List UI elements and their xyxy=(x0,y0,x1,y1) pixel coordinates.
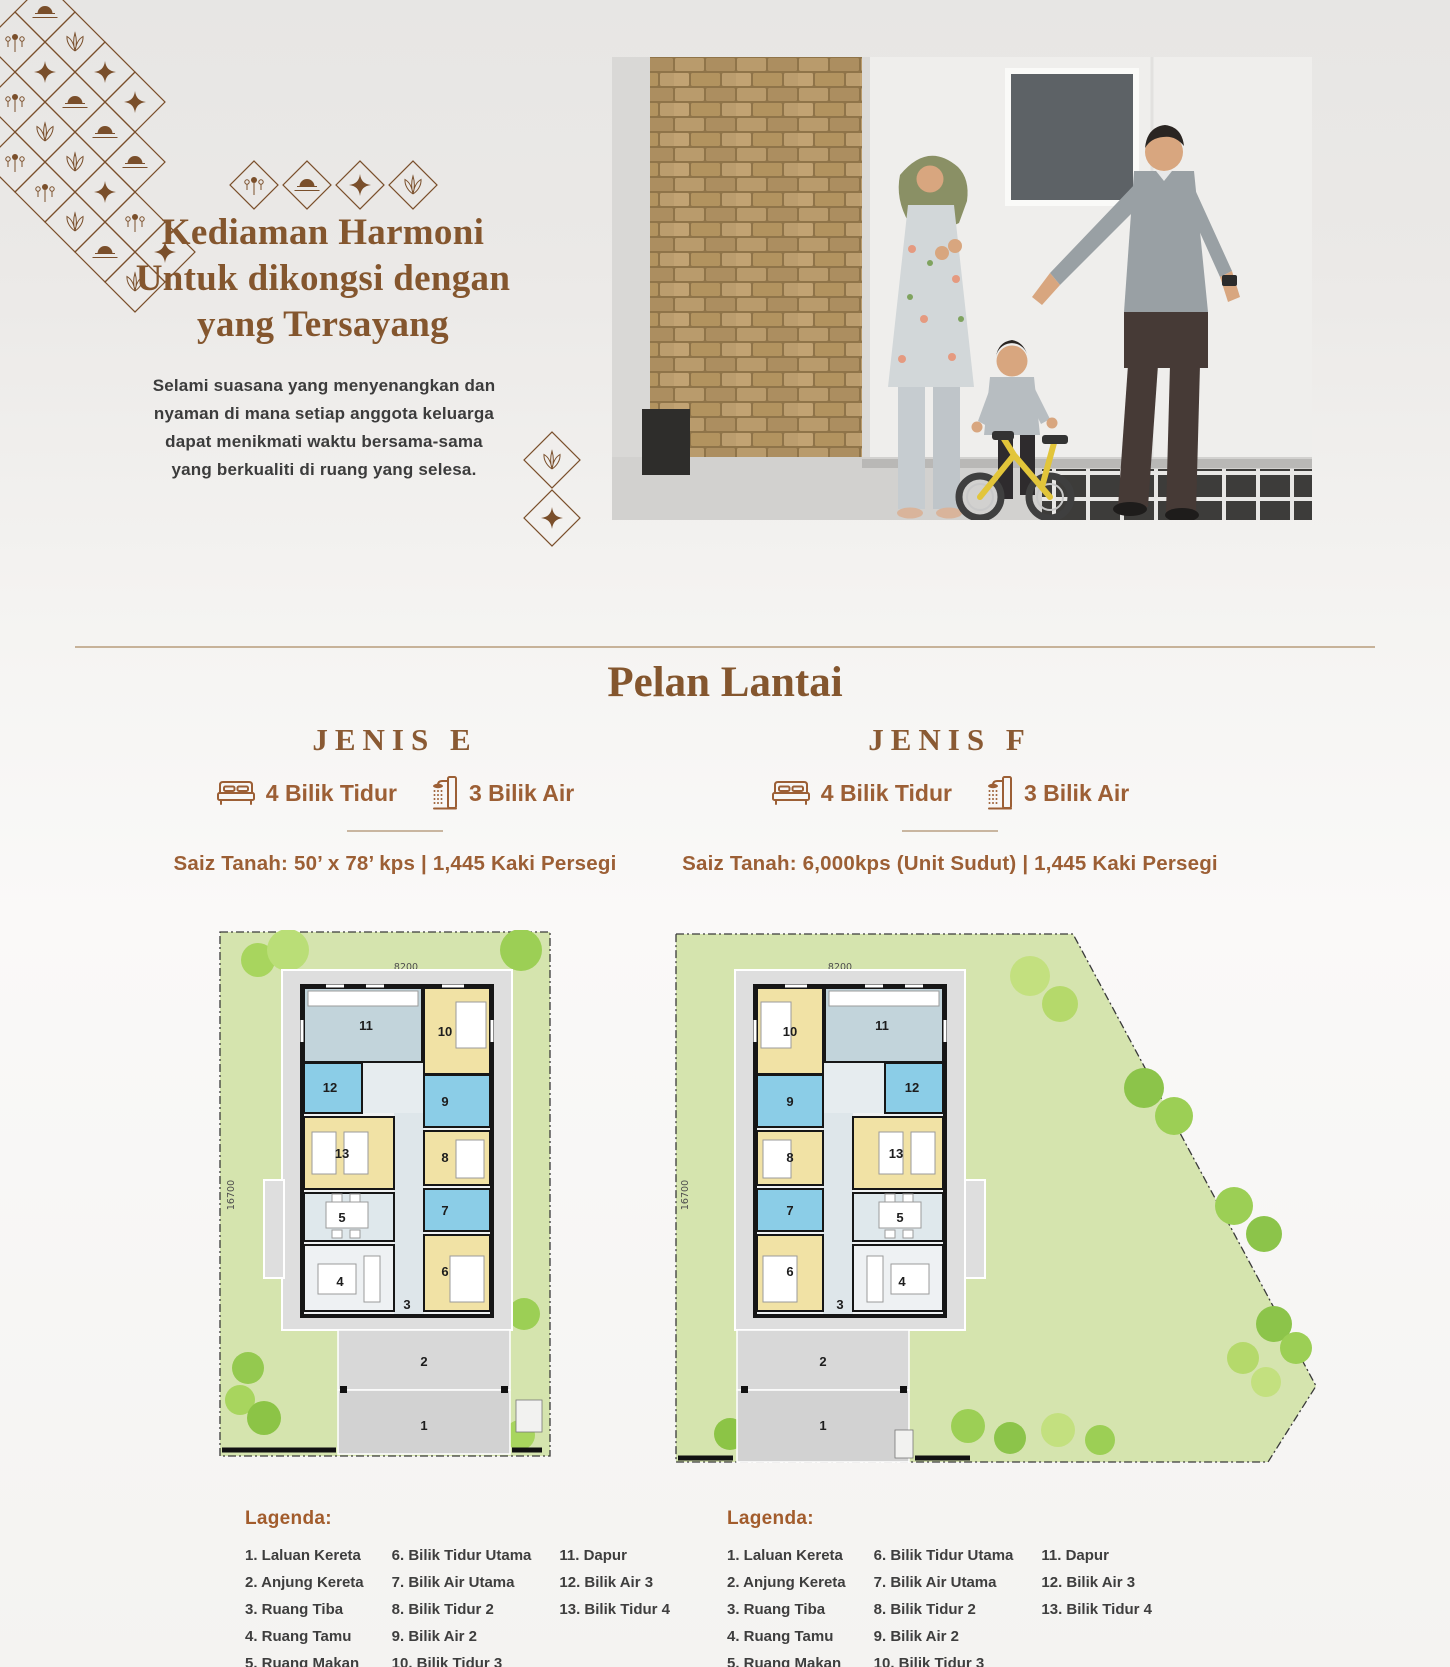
svg-text:6: 6 xyxy=(441,1264,448,1279)
legend-f: Lagenda: 1. Laluan Kereta2. Anjung Keret… xyxy=(727,1508,1187,1667)
diamond-sun-icon xyxy=(75,102,135,162)
svg-text:2: 2 xyxy=(819,1354,826,1369)
legend-item: 8. Bilik Tidur 2 xyxy=(392,1596,532,1623)
plan-depth-label: 16700 xyxy=(680,1180,691,1210)
diamond-lotus-icon xyxy=(389,161,437,209)
diamond-lotus-icon xyxy=(15,102,75,162)
bed-icon xyxy=(771,778,811,808)
plan-depth-label: 16700 xyxy=(226,1180,237,1210)
stone-wall xyxy=(650,57,864,465)
legend-item: 1. Laluan Kereta xyxy=(727,1542,846,1569)
gate-walk xyxy=(516,1400,542,1432)
mini-divider xyxy=(347,830,443,832)
diamond-dots-icon xyxy=(230,161,278,209)
svg-text:4: 4 xyxy=(898,1274,906,1289)
svg-text:7: 7 xyxy=(786,1203,793,1218)
legend-column: 6. Bilik Tidur Utama7. Bilik Air Utama8.… xyxy=(874,1542,1014,1667)
porch-post xyxy=(900,1386,907,1393)
section-title: Pelan Lantai xyxy=(0,658,1450,707)
porch-post xyxy=(501,1386,508,1393)
bed-icon xyxy=(216,778,256,808)
room-9-bilik-air-2 xyxy=(424,1075,490,1127)
hero-description: Selami suasana yang menyenangkan dan nya… xyxy=(146,372,502,484)
diamond-star-icon xyxy=(15,42,75,102)
bedroom-count-label: 4 Bilik Tidur xyxy=(821,780,952,807)
diamond-star-icon xyxy=(336,161,384,209)
svg-text:10: 10 xyxy=(783,1024,797,1039)
shower-icon xyxy=(986,774,1014,812)
shower-icon xyxy=(431,774,459,812)
diamond-lotus-icon xyxy=(45,132,105,192)
legend-item: 4. Ruang Tamu xyxy=(245,1623,364,1650)
porch-post xyxy=(741,1386,748,1393)
svg-text:3: 3 xyxy=(836,1297,843,1312)
legend-columns: 1. Laluan Kereta2. Anjung Kereta3. Ruang… xyxy=(245,1542,705,1667)
legend-item: 12. Bilik Air 3 xyxy=(1041,1569,1152,1596)
floor-plan-jenis-e: 8200 16700 xyxy=(218,930,552,1458)
legend-item: 6. Bilik Tidur Utama xyxy=(392,1542,532,1569)
svg-text:1: 1 xyxy=(819,1418,826,1433)
legend-column: 6. Bilik Tidur Utama7. Bilik Air Utama8.… xyxy=(392,1542,532,1667)
porch-post xyxy=(340,1386,347,1393)
svg-text:8: 8 xyxy=(441,1150,448,1165)
section-divider xyxy=(75,646,1375,648)
diamond-sun-icon xyxy=(45,72,105,132)
legend-item: 10. Bilik Tidur 3 xyxy=(392,1650,532,1667)
plan-e-size: Saiz Tanah: 50’ x 78’ kps | 1,445 Kaki P… xyxy=(115,852,675,876)
diamond-sun-icon xyxy=(105,132,165,192)
window xyxy=(1008,71,1136,203)
bathroom-count-label: 3 Bilik Air xyxy=(469,780,574,807)
svg-text:5: 5 xyxy=(338,1210,345,1225)
legend-e: Lagenda: 1. Laluan Kereta2. Anjung Keret… xyxy=(245,1508,705,1667)
svg-text:6: 6 xyxy=(786,1264,793,1279)
bathroom-count-label: 3 Bilik Air xyxy=(1024,780,1129,807)
svg-text:10: 10 xyxy=(438,1024,452,1039)
family-photo xyxy=(612,57,1312,520)
legend-heading: Lagenda: xyxy=(245,1508,705,1530)
svg-text:13: 13 xyxy=(889,1146,903,1161)
plan-e-features: 4 Bilik Tidur 3 Bilik Air xyxy=(115,774,675,812)
wrist-watch xyxy=(1222,275,1237,286)
room-7-bilik-air-utama xyxy=(424,1189,490,1231)
legend-columns: 1. Laluan Kereta2. Anjung Kereta3. Ruang… xyxy=(727,1542,1187,1667)
plan-f-header: JENIS F 4 Bilik Tidur xyxy=(670,722,1230,876)
bedroom-count-label: 4 Bilik Tidur xyxy=(266,780,397,807)
svg-text:12: 12 xyxy=(323,1080,337,1095)
svg-text:3: 3 xyxy=(403,1297,410,1312)
svg-text:2: 2 xyxy=(420,1354,427,1369)
legend-item: 3. Ruang Tiba xyxy=(245,1596,364,1623)
decorative-diamond-pair xyxy=(520,430,584,552)
decorative-diamond-row xyxy=(228,158,440,212)
diamond-dots-icon xyxy=(0,12,45,72)
legend-column: 11. Dapur12. Bilik Air 313. Bilik Tidur … xyxy=(559,1542,670,1623)
diamond-star-icon xyxy=(105,72,165,132)
legend-item: 12. Bilik Air 3 xyxy=(559,1569,670,1596)
floor-plan-jenis-f: 8200 16700 xyxy=(668,930,1320,1470)
plan-f-name: JENIS F xyxy=(670,722,1230,758)
diamond-lotus-icon xyxy=(524,432,580,488)
legend-column: 1. Laluan Kereta2. Anjung Kereta3. Ruang… xyxy=(727,1542,846,1667)
legend-column: 1. Laluan Kereta2. Anjung Kereta3. Ruang… xyxy=(245,1542,364,1667)
legend-item: 2. Anjung Kereta xyxy=(245,1569,364,1596)
gate-walk xyxy=(895,1430,913,1458)
legend-item: 9. Bilik Air 2 xyxy=(874,1623,1014,1650)
diamond-lotus-icon xyxy=(45,12,105,72)
plan-f-features: 4 Bilik Tidur 3 Bilik Air xyxy=(670,774,1230,812)
svg-text:8: 8 xyxy=(786,1150,793,1165)
legend-item: 5. Ruang Makan xyxy=(727,1650,846,1667)
diamond-dots-icon xyxy=(15,162,75,222)
brochure-page: Kediaman Harmoni Untuk dikongsi dengan y… xyxy=(0,0,1450,1667)
mini-divider xyxy=(902,830,998,832)
legend-item: 7. Bilik Air Utama xyxy=(392,1569,532,1596)
svg-text:11: 11 xyxy=(875,1018,889,1033)
legend-item: 7. Bilik Air Utama xyxy=(874,1569,1014,1596)
svg-text:11: 11 xyxy=(359,1018,373,1033)
legend-column: 11. Dapur12. Bilik Air 313. Bilik Tidur … xyxy=(1041,1542,1152,1623)
svg-text:9: 9 xyxy=(786,1094,793,1109)
legend-item: 9. Bilik Air 2 xyxy=(392,1623,532,1650)
legend-item: 4. Ruang Tamu xyxy=(727,1623,846,1650)
diamond-dots-icon xyxy=(0,132,45,192)
hero-title: Kediaman Harmoni Untuk dikongsi dengan y… xyxy=(88,210,558,348)
plan-e-name: JENIS E xyxy=(115,722,675,758)
legend-item: 8. Bilik Tidur 2 xyxy=(874,1596,1014,1623)
legend-item: 11. Dapur xyxy=(1041,1542,1152,1569)
hero-title-line: Kediaman Harmoni xyxy=(88,210,558,256)
legend-item: 6. Bilik Tidur Utama xyxy=(874,1542,1014,1569)
planter-box xyxy=(642,409,690,475)
legend-item: 5. Ruang Makan xyxy=(245,1650,364,1667)
svg-text:7: 7 xyxy=(441,1203,448,1218)
legend-item: 2. Anjung Kereta xyxy=(727,1569,846,1596)
svg-text:1: 1 xyxy=(420,1418,427,1433)
diamond-star-icon xyxy=(75,42,135,102)
diamond-sun-icon xyxy=(283,161,331,209)
svg-text:5: 5 xyxy=(896,1210,903,1225)
legend-item: 10. Bilik Tidur 3 xyxy=(874,1650,1014,1667)
diamond-dots-icon xyxy=(0,72,45,132)
plan-e-header: JENIS E 4 Bilik Tidur xyxy=(115,722,675,876)
hero-title-line: Untuk dikongsi dengan xyxy=(88,256,558,302)
legend-item: 13. Bilik Tidur 4 xyxy=(1041,1596,1152,1623)
svg-text:12: 12 xyxy=(905,1080,919,1095)
legend-item: 13. Bilik Tidur 4 xyxy=(559,1596,670,1623)
svg-text:13: 13 xyxy=(335,1146,349,1161)
diamond-star-icon xyxy=(524,490,580,546)
svg-text:4: 4 xyxy=(336,1274,344,1289)
legend-item: 1. Laluan Kereta xyxy=(245,1542,364,1569)
svg-text:9: 9 xyxy=(441,1094,448,1109)
legend-heading: Lagenda: xyxy=(727,1508,1187,1530)
hero-title-line: yang Tersayang xyxy=(88,302,558,348)
legend-item: 3. Ruang Tiba xyxy=(727,1596,846,1623)
plan-f-size: Saiz Tanah: 6,000kps (Unit Sudut) | 1,44… xyxy=(670,852,1230,876)
legend-item: 11. Dapur xyxy=(559,1542,670,1569)
